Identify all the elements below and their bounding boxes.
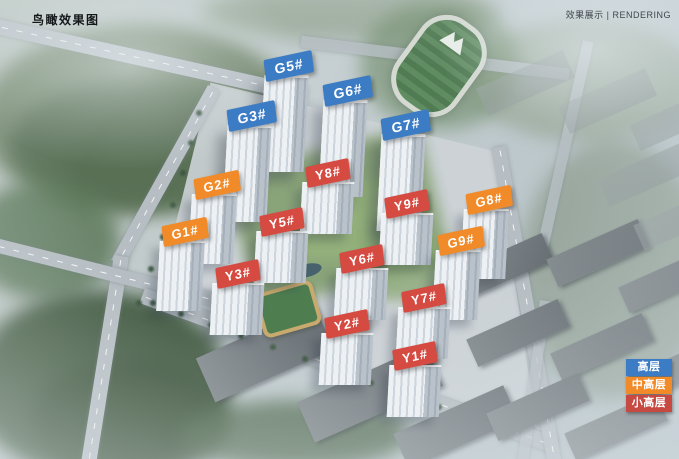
aerial-rendering: G5#G6#G3#G7#Y8#G2#G8#Y9#Y5#G1#G9#Y6#Y3#Y… [0, 0, 679, 459]
header-type-label: 效果展示 | RENDERING [566, 8, 671, 21]
building-g1 [156, 241, 205, 311]
legend-item-smallhighrise: 小高层 [626, 395, 672, 412]
legend: 高层 中高层 小高层 [626, 359, 672, 412]
page-title: 鸟瞰效果图 [32, 11, 100, 28]
building-y2 [319, 333, 374, 385]
annotation-layer: G5#G6#G3#G7#Y8#G2#G8#Y9#Y5#G1#G9#Y6#Y3#Y… [0, 0, 679, 459]
building-y1 [387, 365, 442, 417]
building-y9 [379, 213, 434, 265]
building-y8 [300, 182, 355, 234]
legend-item-midhighrise: 中高层 [626, 377, 672, 394]
legend-item-highrise: 高层 [626, 359, 672, 376]
building-y3 [210, 283, 265, 335]
building-y5 [254, 231, 309, 283]
